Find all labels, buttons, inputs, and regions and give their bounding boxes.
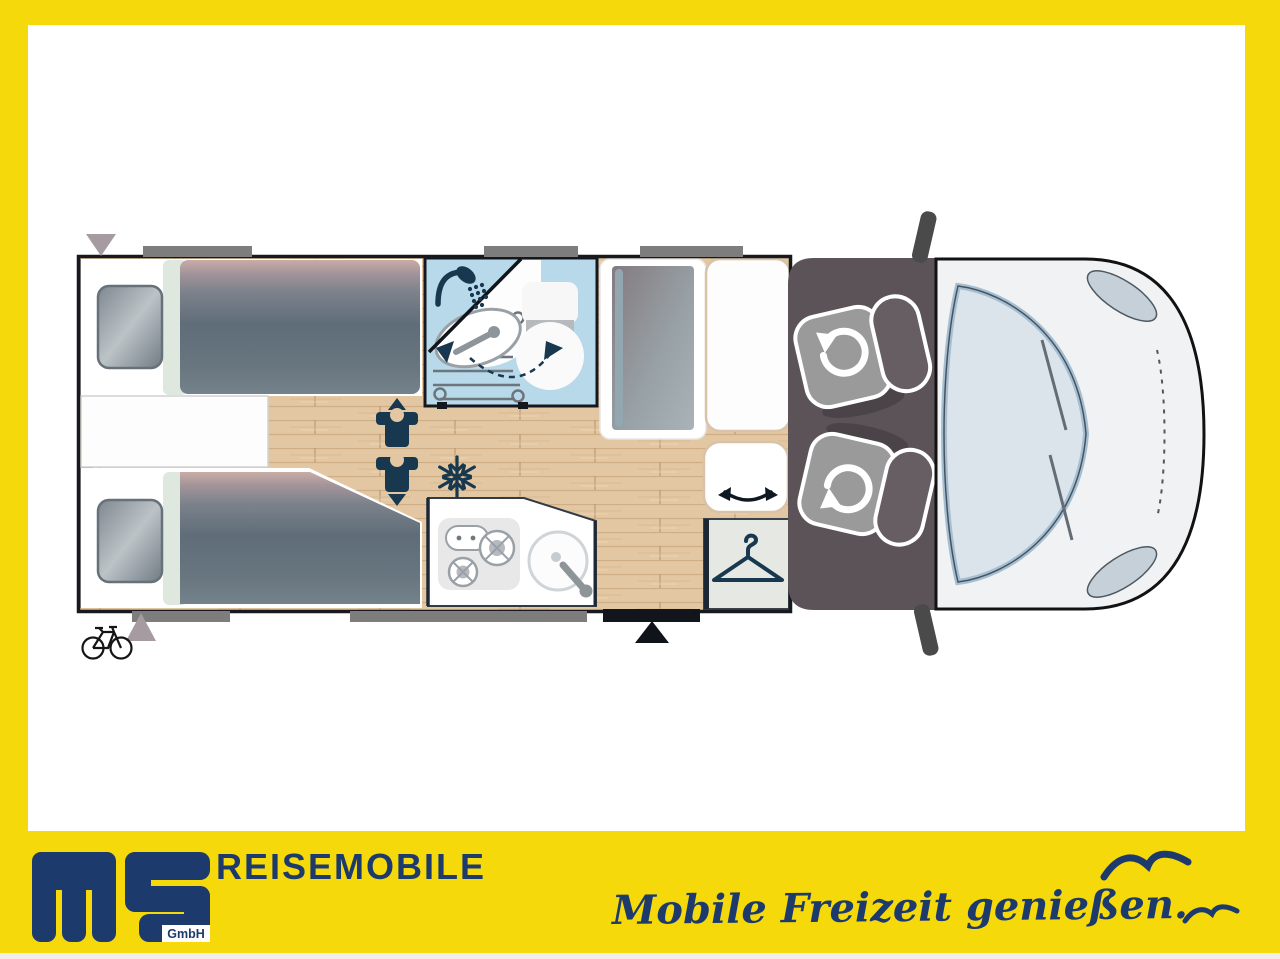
bottom-edge-strip [0, 953, 1280, 959]
snowflake-icon [437, 457, 478, 497]
windshield-outline [944, 286, 1086, 582]
shower-wall [429, 259, 521, 352]
wood-floor [80, 258, 790, 610]
headlight-bottom [1080, 538, 1163, 607]
seagull-icon [1182, 901, 1240, 931]
swivel-arrow-right-icon [544, 341, 563, 360]
rear-edge-bottom [80, 466, 93, 608]
travel-seat-shirt-bottom [376, 453, 418, 492]
vehicle-front [911, 210, 1204, 657]
entry-door-marker-icon [635, 621, 669, 643]
cab-floor [788, 258, 938, 610]
wipers [1042, 340, 1072, 540]
duvet [180, 260, 420, 394]
frame-top-bar [0, 0, 1280, 25]
shower-tray [432, 260, 541, 367]
bathroom [425, 258, 597, 409]
drain-lines [433, 313, 524, 402]
refrigerator [600, 259, 706, 439]
ms-logo: GmbH [30, 848, 215, 946]
living-area [80, 258, 790, 610]
hood-line [1157, 350, 1165, 518]
basin-handle [456, 332, 494, 352]
bed-platform-bottom [81, 468, 422, 608]
window-bars [132, 246, 743, 622]
swivel-cab-seat-icon [791, 292, 938, 427]
center-shelf [81, 396, 268, 467]
fridge-frame [600, 259, 706, 439]
toilet-bowl [516, 322, 584, 390]
flyer-canvas: { "brand": { "logo_monogram": "ms", "gmb… [0, 0, 1280, 959]
toilet-hinge [526, 320, 574, 336]
tall-cabinet [706, 259, 790, 431]
door-jamb [518, 402, 528, 409]
door-jamb [437, 402, 447, 409]
rear-edge-top [80, 259, 93, 397]
van-wall-outline [79, 257, 791, 612]
travel-seat-down-icon [388, 494, 406, 506]
swivel-path [470, 354, 550, 377]
entry-door [603, 609, 700, 622]
swivel-bench-arrow-icon [725, 492, 771, 500]
blanket-band [163, 260, 187, 395]
frame-right-bar [1245, 0, 1280, 959]
side-mirror-icon [911, 210, 938, 264]
wardrobe [704, 519, 789, 609]
headlight-top [1080, 262, 1163, 331]
bed-bottom [98, 472, 420, 605]
basin-drain [488, 326, 500, 338]
vehicle-body [936, 259, 1204, 609]
floorplan-graphic [0, 0, 1280, 959]
fridge-icon [612, 266, 694, 430]
cooktop-icon [438, 518, 520, 590]
seagull-icon [1100, 849, 1192, 891]
travel-seat-up-icon [388, 398, 406, 410]
side-mirror-icon [913, 603, 940, 657]
gmbh-label: GmbH [167, 927, 205, 941]
washbasin-icon [428, 299, 528, 378]
bicycle-icon [83, 627, 132, 659]
swivel-arrow-left-icon [436, 341, 454, 363]
bed-top [98, 260, 420, 395]
travel-seat-shirt-top [376, 408, 418, 447]
duvet [180, 472, 420, 604]
toilet-tank [522, 282, 578, 324]
sink-icon [529, 532, 593, 598]
hanger-icon [714, 536, 782, 580]
shower-icon [438, 263, 488, 309]
kitchen-block [428, 498, 596, 606]
rear-marker-triangle-icon [126, 613, 156, 641]
pillow [98, 286, 162, 368]
brand-wordmark: REISEMOBILE [216, 846, 486, 888]
windshield [944, 286, 1086, 582]
rear-marker-triangle-icon [86, 234, 116, 256]
frame-left-bar [0, 0, 28, 959]
swivel-cab-seat-icon [795, 415, 942, 550]
travel-bench [704, 442, 788, 512]
arrowhead [718, 487, 731, 501]
logo-monogram-m [32, 852, 116, 942]
blanket-band [163, 472, 187, 605]
bathroom-floor [425, 258, 597, 406]
bed-platform-top [81, 259, 422, 396]
arrowhead [765, 487, 778, 501]
pillow [98, 500, 162, 582]
fridge-handle [615, 269, 623, 427]
